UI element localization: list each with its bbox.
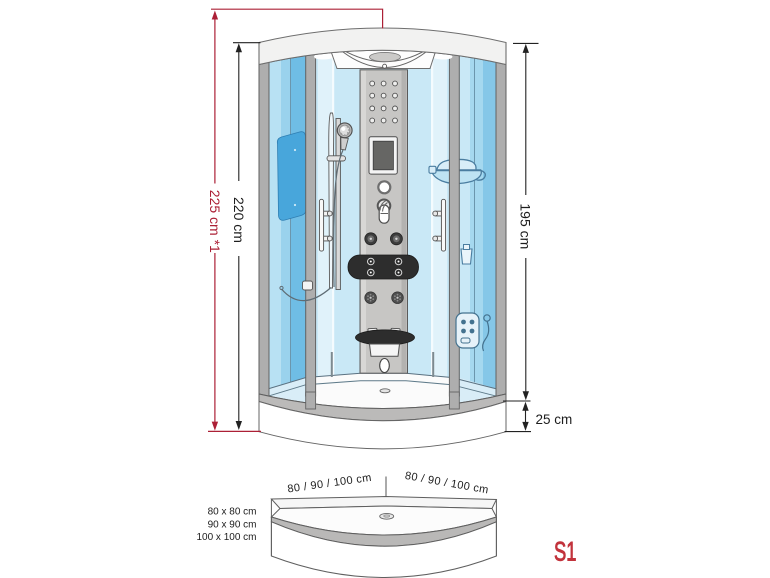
svg-text:25 cm: 25 cm	[536, 412, 573, 427]
svg-text:225 cm *1: 225 cm *1	[207, 190, 223, 253]
svg-text:90 x 90 cm: 90 x 90 cm	[208, 519, 257, 530]
svg-text:220 cm: 220 cm	[231, 197, 247, 243]
svg-text:S1: S1	[554, 536, 577, 566]
svg-text:100 x 100 cm: 100 x 100 cm	[196, 532, 256, 543]
svg-text:80 x 80 cm: 80 x 80 cm	[208, 507, 257, 518]
svg-text:195 cm: 195 cm	[518, 203, 534, 249]
